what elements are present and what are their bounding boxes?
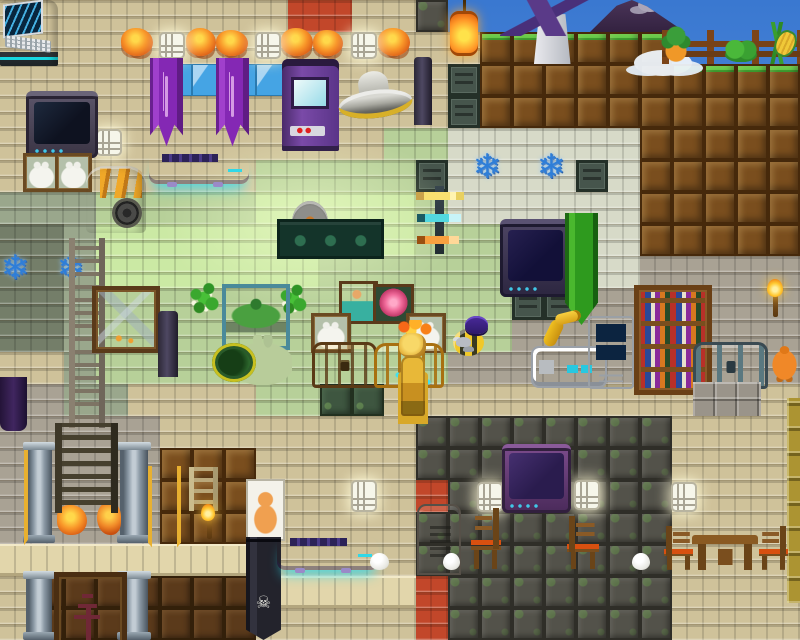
table <box>692 535 758 570</box>
tile-dirt <box>736 224 768 256</box>
wall-light <box>351 32 377 59</box>
cat-poster <box>246 479 285 541</box>
game-world-canvas <box>0 0 800 640</box>
tile-red-brick <box>416 608 448 640</box>
tile-beige-brick <box>352 448 384 480</box>
chair[interactable] <box>759 526 788 570</box>
tile-dirt <box>736 128 768 160</box>
tile-bright-green-brick <box>384 224 416 256</box>
tile-beige-brick <box>448 384 480 416</box>
tile-dirt <box>736 160 768 192</box>
tile-dirt <box>576 96 608 128</box>
blue-crystal <box>466 148 508 192</box>
tile-green-brick <box>288 384 320 416</box>
tv-purple[interactable] <box>502 444 571 513</box>
blue-crystal <box>0 249 32 287</box>
tile-grass-dirt <box>736 64 768 96</box>
painting-mountain <box>92 286 160 353</box>
tile-beige-brick <box>320 416 352 448</box>
tile-beige-brick <box>160 0 192 32</box>
tile-dark-stone <box>640 576 672 608</box>
tile-beige-brick <box>256 0 288 32</box>
tile-beige-brick <box>352 608 384 640</box>
bush <box>724 40 758 62</box>
tile-beige-brick <box>704 480 736 512</box>
tile-dark-stone <box>576 608 608 640</box>
tile-beige-brick <box>256 416 288 448</box>
tile-dark-stone <box>416 416 448 448</box>
tile-green-brick <box>256 160 288 192</box>
painting-pagoda <box>54 572 127 640</box>
tile-green-brick <box>352 160 384 192</box>
tile-dark-stone <box>512 544 544 576</box>
tile-dark-stone <box>576 416 608 448</box>
tile-dark-stone <box>448 448 480 480</box>
tile-dirt <box>640 224 672 256</box>
tile-dirt <box>704 160 736 192</box>
tile-dirt <box>736 96 768 128</box>
tile-pale-brick <box>576 128 608 160</box>
fire-lamp <box>186 28 216 56</box>
player-gold[interactable] <box>388 320 438 420</box>
tile-beige-brick <box>320 448 352 480</box>
tile-grass-dirt <box>768 64 800 96</box>
egg <box>632 553 650 570</box>
tile-stone-slab <box>384 576 416 608</box>
corn-plant <box>756 22 798 64</box>
tile-dirt <box>224 448 256 480</box>
tile-green-brick <box>384 160 416 192</box>
tile-dark-stone <box>640 608 672 640</box>
dark-pole <box>158 311 178 377</box>
wall-light <box>351 480 377 512</box>
tile-beige-brick <box>512 384 544 416</box>
tile-green-brick <box>384 128 416 160</box>
tile-dark-stone <box>480 608 512 640</box>
tile-green-brick <box>288 160 320 192</box>
tile-dirt <box>640 96 672 128</box>
tile-beige-brick <box>32 352 64 384</box>
tv-dark[interactable] <box>26 91 98 158</box>
orange-flag <box>148 466 181 562</box>
tile-beige-brick <box>288 608 320 640</box>
tile-beige-brick <box>672 448 704 480</box>
tile-dark-stone <box>416 0 448 32</box>
tile-bright-green-brick <box>160 224 192 256</box>
robot-arm[interactable] <box>543 313 591 353</box>
tile-dark-stone <box>544 608 576 640</box>
tile-gray-brick <box>640 256 672 288</box>
fire-lamp <box>216 30 248 56</box>
orange-pet[interactable] <box>769 344 800 382</box>
stone-column <box>26 571 52 640</box>
tile-stone-slab <box>352 576 384 608</box>
tile-dirt <box>768 224 800 256</box>
science-machine[interactable] <box>0 0 58 66</box>
tile-dirt <box>544 64 576 96</box>
tile-dirt <box>672 96 704 128</box>
tile-dirt <box>672 128 704 160</box>
hoverbed[interactable] <box>277 535 379 570</box>
green-sprig <box>184 281 224 319</box>
dark-pole <box>414 57 432 125</box>
tile-sage-brick <box>32 192 64 224</box>
torch <box>196 504 220 540</box>
arcade-machine[interactable] <box>282 59 339 151</box>
tile-dirt <box>640 192 672 224</box>
tile-dark-stone <box>576 448 608 480</box>
wall-light <box>96 129 122 156</box>
tile-green-brick <box>256 384 288 416</box>
gold-strip <box>787 398 800 603</box>
tile-beige-brick <box>320 480 352 512</box>
tile-beige-brick <box>96 96 128 128</box>
tile-beige-brick <box>256 448 288 480</box>
tile-beige-brick <box>224 384 256 416</box>
tile-beige-brick <box>192 384 224 416</box>
saucer[interactable] <box>335 71 414 128</box>
tile-dirt <box>768 160 800 192</box>
tile-beige-brick <box>384 416 416 448</box>
fire-lamp <box>378 28 410 56</box>
tile-beige-brick <box>384 480 416 512</box>
wall-light <box>671 482 697 512</box>
tile-beige-brick <box>288 416 320 448</box>
pineapple-plant <box>660 24 692 64</box>
tile-bright-green-brick <box>224 224 256 256</box>
tile-beige-brick <box>192 416 224 448</box>
wall-light <box>255 32 281 59</box>
tile-pale-brick <box>608 160 640 192</box>
windmill <box>495 0 613 64</box>
tile-beige-brick <box>544 384 576 416</box>
lantern <box>446 0 482 60</box>
tile-beige-brick <box>384 512 416 544</box>
tile-dark-stone <box>448 416 480 448</box>
tile-beige-brick <box>736 480 768 512</box>
tile-metal-vent <box>576 160 608 192</box>
tile-red-brick <box>416 576 448 608</box>
tile-beige-brick <box>704 448 736 480</box>
tile-sage-brick <box>0 192 32 224</box>
tile-green-brick <box>320 160 352 192</box>
tile-green-brick <box>192 192 224 224</box>
green-banner <box>565 213 598 325</box>
tile-bright-green-brick <box>192 224 224 256</box>
tile-dark-stone <box>640 416 672 448</box>
tile-olive-brick <box>0 320 32 352</box>
tile-dirt <box>576 64 608 96</box>
blue-crystal <box>530 148 572 192</box>
tile-dirt <box>672 192 704 224</box>
generator[interactable] <box>86 166 146 233</box>
tile-dark-dirt <box>160 576 192 608</box>
tile-dirt <box>480 64 512 96</box>
tile-dirt <box>672 224 704 256</box>
tile-dirt <box>768 128 800 160</box>
tile-olive-brick <box>32 288 64 320</box>
sword-rack <box>414 186 466 254</box>
tile-mossy-stone <box>320 384 352 416</box>
tile-green-brick <box>448 256 480 288</box>
tile-dark-stone <box>512 512 544 544</box>
tile-bright-green-brick <box>128 256 160 288</box>
tile-beige-brick <box>96 64 128 96</box>
tile-olive-brick <box>32 320 64 352</box>
tile-gray-brick <box>32 384 64 416</box>
egg <box>443 553 460 570</box>
tile-dirt <box>544 96 576 128</box>
tile-gray-brick <box>704 256 736 288</box>
tile-dark-stone <box>512 576 544 608</box>
tile-beige-brick <box>288 448 320 480</box>
tile-dark-stone <box>576 576 608 608</box>
stone-column <box>120 442 148 543</box>
tile-beige-brick <box>128 384 160 416</box>
bunny-shell-pet[interactable] <box>212 335 292 385</box>
tile-metal-vent <box>448 64 480 96</box>
fire-lamp <box>313 30 343 56</box>
tile-beige-brick <box>352 416 384 448</box>
tile-green-brick <box>416 256 448 288</box>
tile-beige-brick <box>384 448 416 480</box>
tile-beige-brick <box>480 384 512 416</box>
tile-grass-dirt <box>704 64 736 96</box>
tile-green-brick <box>416 128 448 160</box>
tile-dark-stone <box>448 608 480 640</box>
tile-green-brick <box>224 192 256 224</box>
tile-beige-brick <box>224 416 256 448</box>
tile-pale-brick <box>608 192 640 224</box>
stone-slabs <box>693 382 761 416</box>
tile-beige-brick <box>64 0 96 32</box>
orange-flag <box>0 450 28 562</box>
tile-beige-brick <box>320 608 352 640</box>
bee-pet[interactable] <box>450 316 502 366</box>
tile-beige-brick <box>0 64 32 96</box>
purple-curtain <box>0 377 27 431</box>
tile-dark-dirt <box>160 608 192 640</box>
tile-dirt <box>704 96 736 128</box>
tile-beige-brick <box>160 384 192 416</box>
tile-beige-brick <box>224 0 256 32</box>
tile-dirt <box>480 96 512 128</box>
tile-beige-brick <box>704 608 736 640</box>
skull-banner <box>246 537 281 640</box>
tile-stone-slab <box>192 544 224 576</box>
tile-dark-stone <box>608 608 640 640</box>
tile-dark-stone <box>640 448 672 480</box>
tile-dark-stone <box>608 576 640 608</box>
tile-dirt <box>704 224 736 256</box>
chest-wood[interactable] <box>312 342 377 388</box>
tile-pale-brick <box>608 256 640 288</box>
computer-tower[interactable] <box>588 316 634 389</box>
tile-dark-stone <box>544 576 576 608</box>
tile-pale-brick <box>608 224 640 256</box>
tile-bright-green-brick <box>384 192 416 224</box>
tv-blue[interactable] <box>500 219 571 297</box>
tile-beige-brick <box>736 448 768 480</box>
tile-dirt <box>672 160 704 192</box>
tile-olive-brick <box>0 288 32 320</box>
tile-beige-brick <box>352 0 384 32</box>
tile-metal-vent <box>448 96 480 128</box>
butterfly-case <box>277 219 384 259</box>
wall-light <box>574 480 600 510</box>
hoverbed[interactable] <box>149 151 249 184</box>
tile-stone-slab <box>288 576 320 608</box>
tile-dirt <box>512 64 544 96</box>
tile-stone-slab <box>320 576 352 608</box>
tile-dirt <box>608 96 640 128</box>
tile-pale-brick <box>608 128 640 160</box>
fire-lamp <box>281 28 313 56</box>
tile-dirt <box>704 128 736 160</box>
tile-beige-brick <box>736 576 768 608</box>
stone-column <box>26 442 52 543</box>
tile-beige-brick <box>704 416 736 448</box>
tile-beige-brick <box>672 416 704 448</box>
tile-dirt <box>736 192 768 224</box>
tile-dark-stone <box>416 448 448 480</box>
tile-dark-stone <box>608 448 640 480</box>
tile-dirt <box>640 128 672 160</box>
tile-mossy-stone <box>352 384 384 416</box>
tile-beige-brick <box>96 0 128 32</box>
tile-dark-stone <box>608 480 640 512</box>
fire-lamp <box>121 28 153 56</box>
tile-dirt <box>768 192 800 224</box>
tile-beige-brick <box>768 608 800 640</box>
tile-beige-brick <box>672 576 704 608</box>
tile-beige-brick <box>160 416 192 448</box>
tile-beige-brick <box>352 128 384 160</box>
torch <box>761 279 789 319</box>
tile-green-brick <box>128 352 160 384</box>
tile-dirt <box>640 160 672 192</box>
tile-dirt <box>608 64 640 96</box>
chair[interactable] <box>471 508 501 569</box>
tile-dark-dirt <box>192 576 224 608</box>
tile-red-brick <box>320 0 352 32</box>
dark-ladder[interactable] <box>55 423 118 513</box>
tile-beige-brick <box>736 416 768 448</box>
chair[interactable] <box>664 526 693 570</box>
tile-dark-stone <box>448 576 480 608</box>
tile-green-brick <box>160 192 192 224</box>
tile-dark-stone <box>608 416 640 448</box>
tile-dirt <box>768 96 800 128</box>
tile-dark-stone <box>640 480 672 512</box>
tile-beige-brick <box>672 608 704 640</box>
tile-dark-dirt <box>192 608 224 640</box>
wall-light <box>159 32 185 59</box>
tile-dirt <box>704 192 736 224</box>
chair[interactable] <box>567 516 599 569</box>
egg <box>370 553 389 570</box>
tile-dirt <box>512 96 544 128</box>
tile-dark-stone <box>480 576 512 608</box>
tile-dark-stone <box>512 608 544 640</box>
tile-beige-brick <box>64 32 96 64</box>
tile-beige-brick <box>288 480 320 512</box>
tile-beige-brick <box>736 608 768 640</box>
tile-gray-brick <box>672 256 704 288</box>
tile-beige-brick <box>384 608 416 640</box>
tile-dark-stone <box>608 512 640 544</box>
tile-beige-brick <box>704 576 736 608</box>
